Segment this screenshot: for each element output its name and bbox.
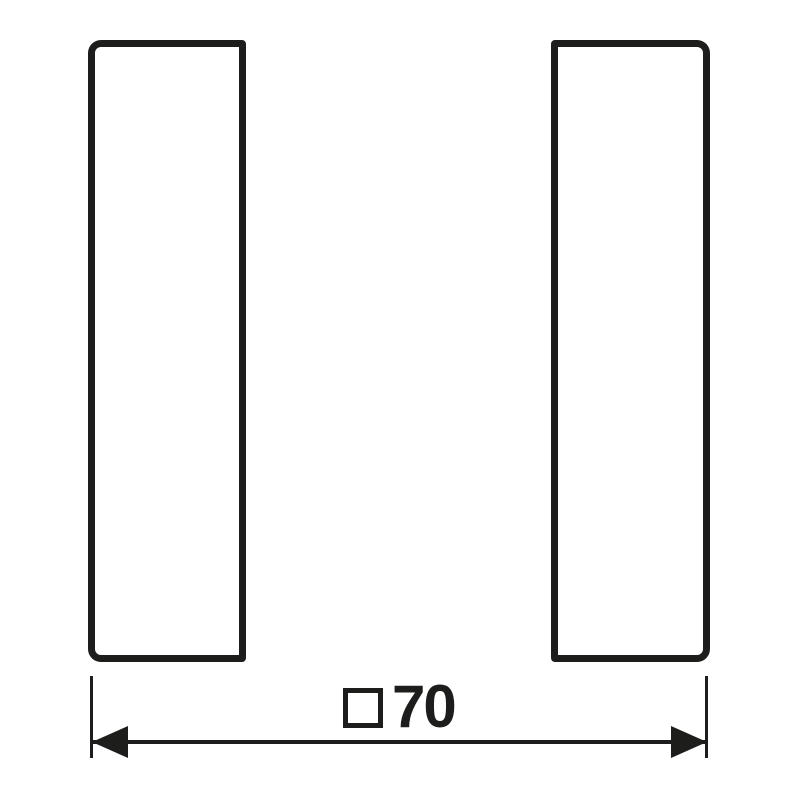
dimension-label: 70: [343, 682, 455, 734]
left-rocker-outline: [88, 40, 246, 662]
dimension-value: 70: [392, 677, 455, 737]
square-dimension-icon: [343, 688, 383, 728]
left-arrowhead-icon: [92, 726, 128, 758]
right-arrowhead-icon: [671, 726, 707, 758]
right-rocker-outline: [551, 40, 710, 662]
dimension-line: [92, 740, 707, 744]
technical-drawing-canvas: 70: [0, 0, 800, 800]
